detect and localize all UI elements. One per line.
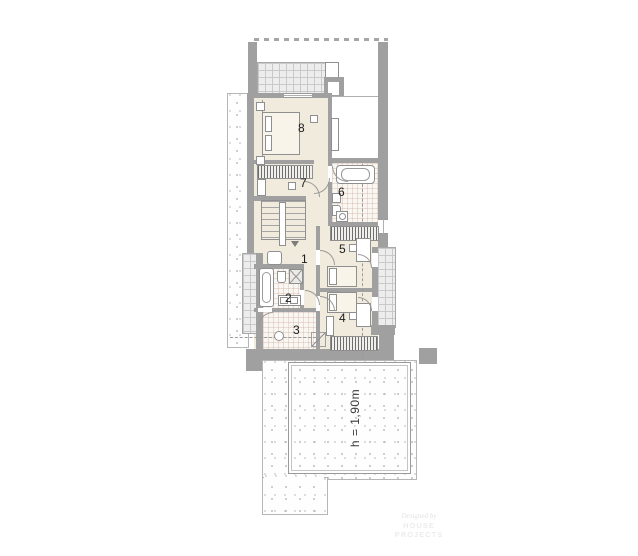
bed-room8-pillow-1 (265, 116, 272, 132)
terrace-sliding-door-rail (284, 95, 312, 96)
wall-left-outer-upper (247, 93, 254, 253)
void-top-line (332, 96, 378, 97)
wardrobe-hatch-room4 (330, 336, 378, 351)
marker-room7 (288, 182, 296, 190)
shelf-room4 (326, 316, 334, 336)
wall-right-outer (378, 42, 388, 247)
lower-roof-dotted-leg (262, 477, 328, 515)
marker-room8 (310, 115, 318, 123)
shower-room2 (289, 269, 303, 284)
room-label-2: 2 (285, 291, 292, 305)
room3-dashed-line (230, 337, 316, 338)
toilet-room2 (277, 271, 286, 283)
room-label-6: 6 (338, 185, 345, 199)
wardrobe-hatch-room5 (330, 226, 379, 241)
watermark-line2: HOUSE PROJECTS (378, 521, 460, 539)
marker-room4 (349, 312, 357, 320)
pillar-bottom-left (246, 349, 263, 371)
door-gap-balcony5 (372, 253, 378, 267)
nightstand-top-room8 (256, 102, 265, 111)
nightstand-bottom-room8 (256, 156, 265, 165)
roof-ridge-dashed-line (254, 38, 388, 41)
washing-machine-drum (339, 213, 346, 220)
lower-roof-seam-patch (264, 475, 324, 480)
room-label-5: 5 (339, 242, 346, 256)
cabinet-room7 (257, 179, 266, 196)
balcony-pillar (379, 334, 394, 360)
room-label-1: 1 (301, 252, 308, 266)
room-label-8: 8 (298, 121, 305, 135)
staircase-center-rail (279, 202, 286, 246)
bed-room5-pillow (329, 268, 337, 285)
boiler-room3 (274, 331, 284, 341)
pillar-far-right (419, 348, 437, 364)
room-label-3: 3 (293, 323, 300, 337)
watermark: Designed by HOUSE PROJECTS (378, 512, 460, 539)
marker-room5 (349, 244, 357, 252)
staircase-direction-arrow (291, 241, 299, 247)
room-label-4: 4 (339, 311, 346, 325)
floor-plan-canvas: 1 2 3 4 5 6 7 8 h = 1,90m Designed by HO… (0, 0, 638, 556)
table-hall (267, 251, 282, 265)
room-label-7: 7 (300, 176, 307, 190)
height-annotation: h = 1,90m (347, 373, 363, 463)
hatch-access-room3 (311, 332, 326, 347)
door-gap-balcony4 (372, 297, 378, 311)
window-right-wall-mullion (383, 219, 384, 234)
wall-top-left-column (248, 42, 257, 97)
watermark-line1: Designed by (378, 512, 460, 521)
wardrobe-room8 (331, 118, 339, 151)
wall-room6-top (332, 158, 378, 163)
bathtub-room2-basin (262, 272, 271, 303)
bed-room8-pillow-2 (265, 135, 272, 151)
balcony-grid-strip (377, 247, 396, 328)
